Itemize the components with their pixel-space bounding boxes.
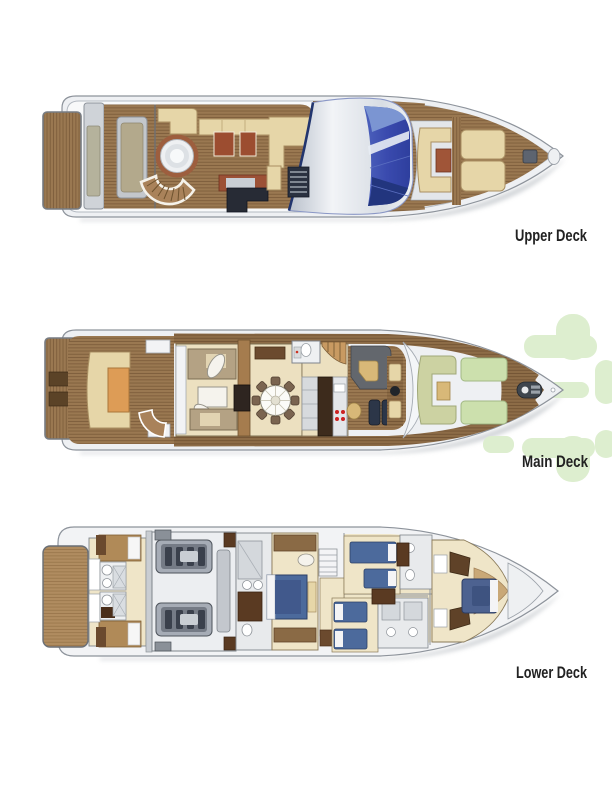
- svg-text:Main Deck: Main Deck: [522, 453, 589, 471]
- svg-text:Lower Deck: Lower Deck: [516, 664, 588, 682]
- svg-text:Upper Deck: Upper Deck: [515, 227, 588, 245]
